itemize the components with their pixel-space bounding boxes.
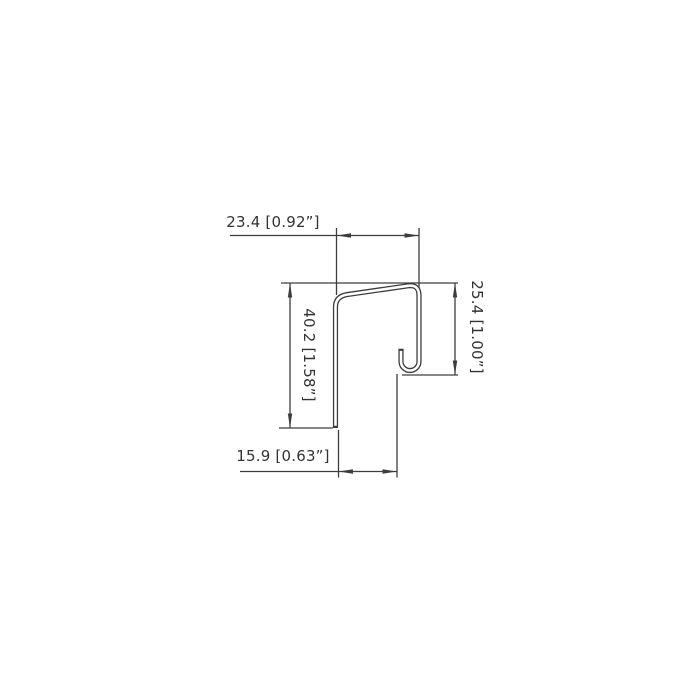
profile-outline <box>336 286 420 428</box>
profile-core <box>336 286 420 426</box>
dimension-labels: 23.4 [0.92”] 15.9 [0.63”] 25.4 [1.00”] 4… <box>226 213 486 465</box>
dimension-label-top: 23.4 [0.92”] <box>226 213 319 231</box>
arrow-icon <box>337 233 352 237</box>
technical-drawing: 23.4 [0.92”] 15.9 [0.63”] 25.4 [1.00”] 4… <box>0 0 700 700</box>
dimension-label-left: 40.2 [1.58”] <box>300 308 318 401</box>
arrow-icon <box>288 414 292 429</box>
arrow-icon <box>405 233 420 237</box>
dimension-label-bottom: 15.9 [0.63”] <box>236 447 329 465</box>
arrow-icon <box>383 469 398 473</box>
arrow-icon <box>339 469 354 473</box>
drawing-canvas: 23.4 [0.92”] 15.9 [0.63”] 25.4 [1.00”] 4… <box>0 0 700 700</box>
arrow-icon <box>453 283 457 298</box>
arrow-icon <box>288 283 292 298</box>
profile-cross-section <box>336 286 420 428</box>
arrow-icon <box>453 361 457 376</box>
dimension-label-right: 25.4 [1.00”] <box>468 280 486 373</box>
